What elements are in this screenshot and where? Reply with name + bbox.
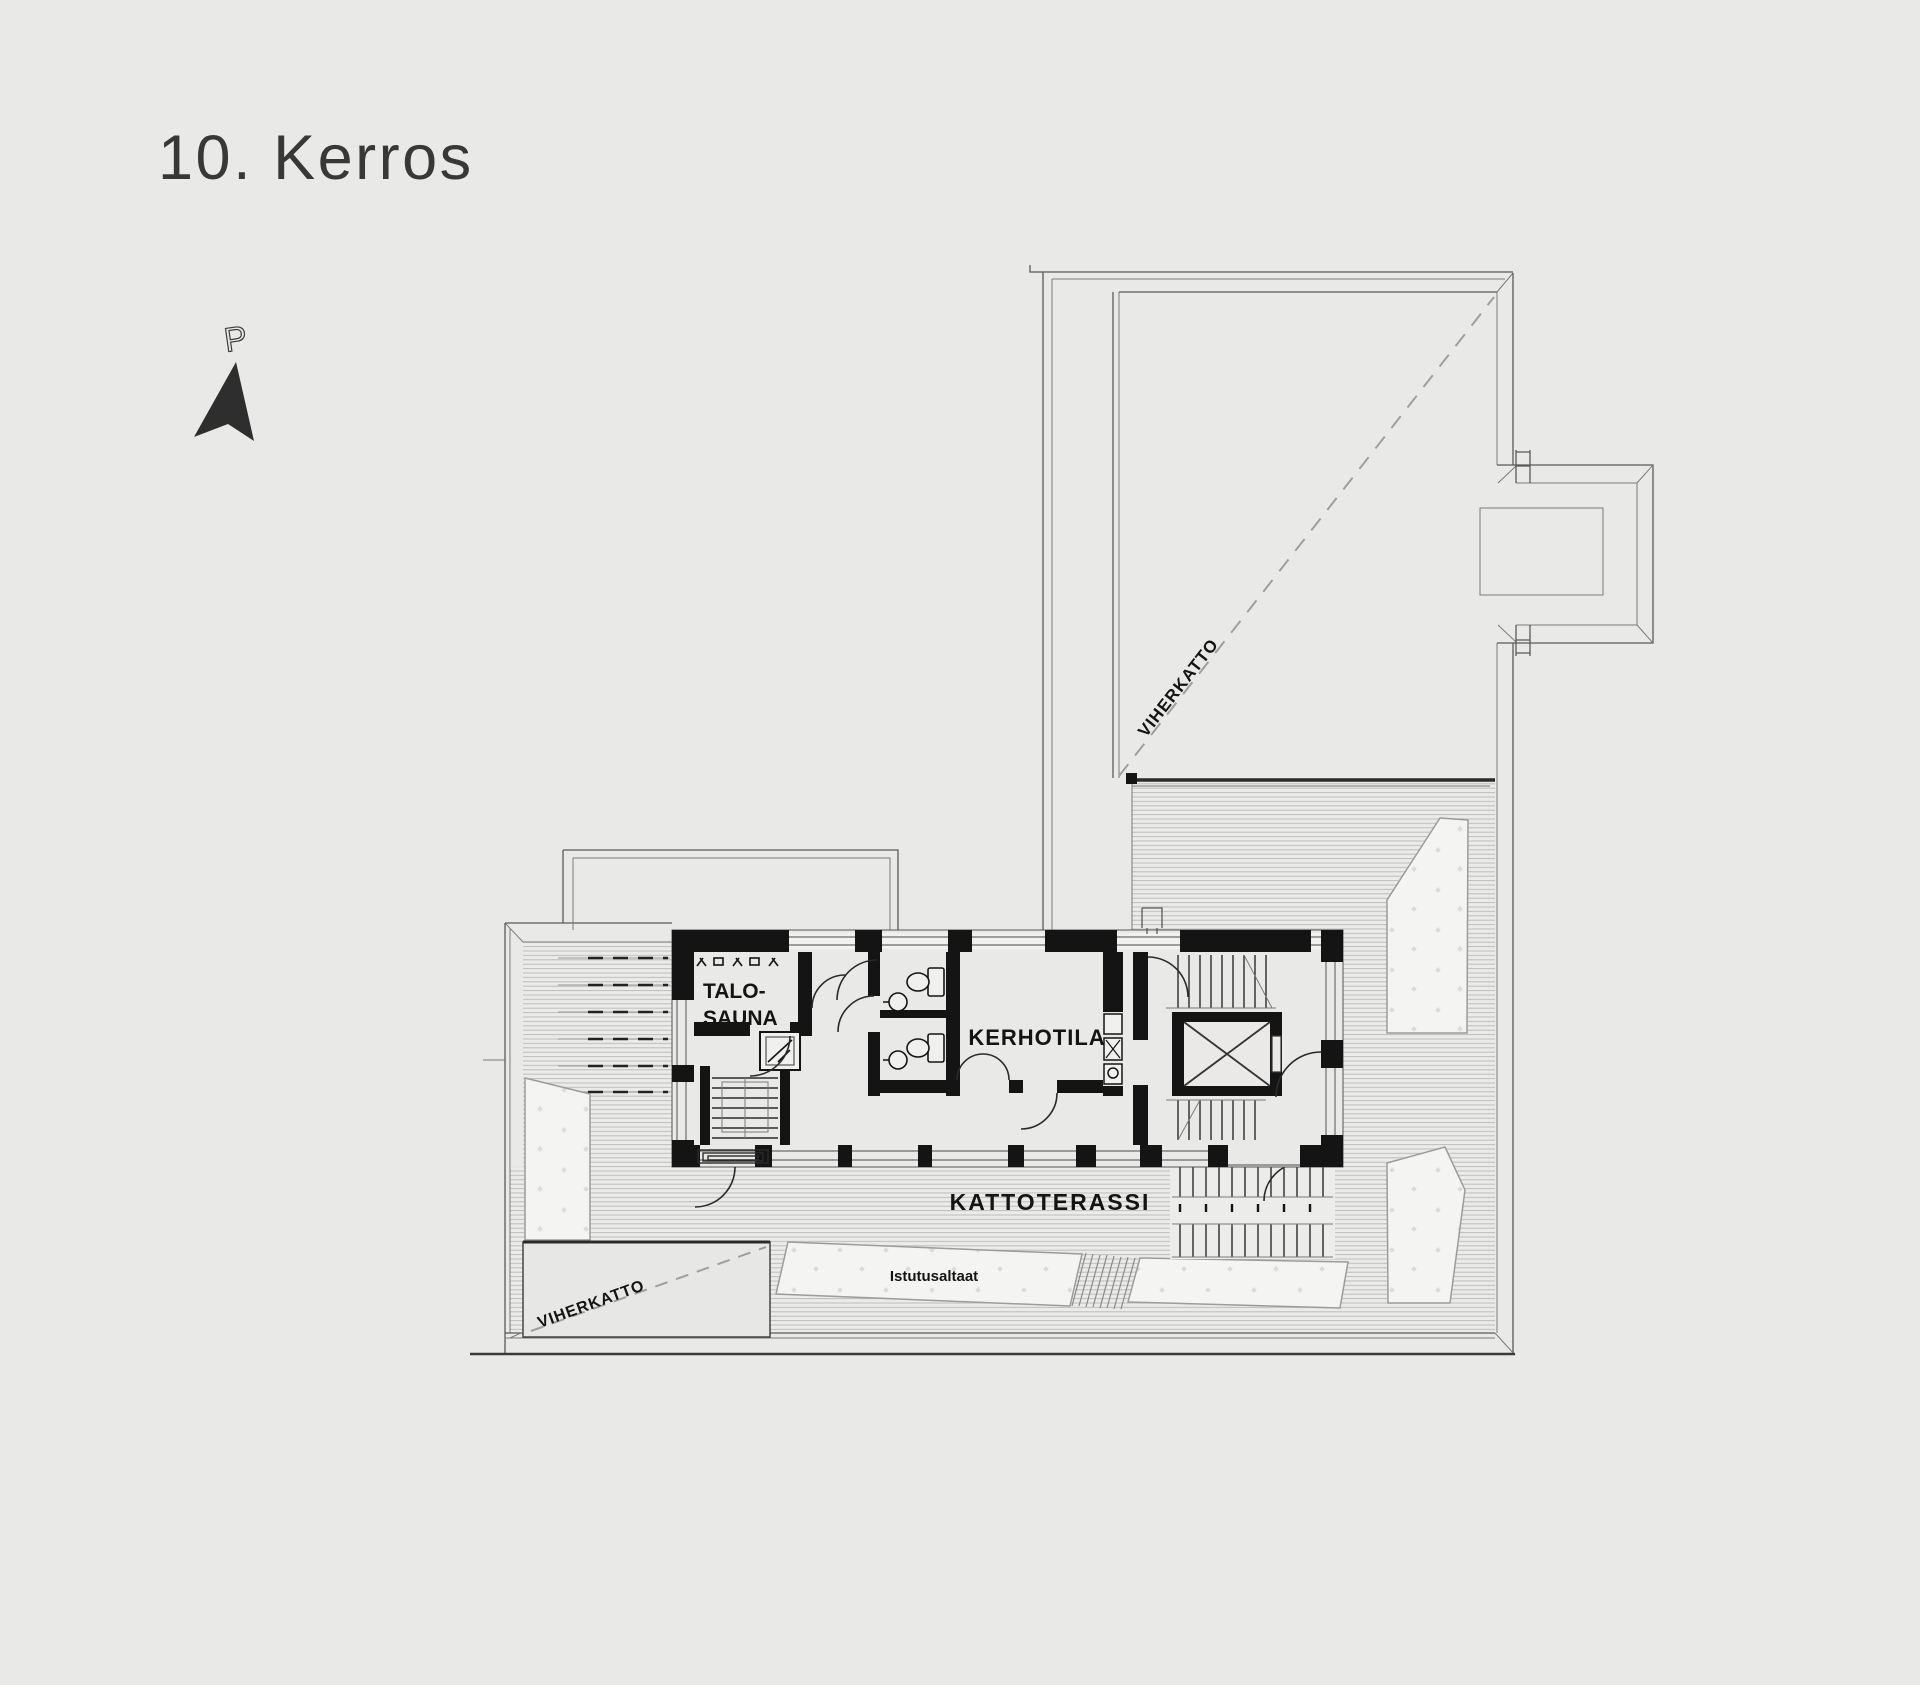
north-arrow: P	[194, 319, 254, 441]
roof-bumpout	[1480, 450, 1653, 656]
club-room-label: KERHOTILA	[968, 1025, 1105, 1050]
building: TALO- SAUNA KERHOTILA	[672, 908, 1343, 1207]
floor-plan-drawing: P VIHERKATTO	[0, 0, 1920, 1680]
north-label: P	[222, 319, 250, 360]
roof-terrace-label: KATTOTERASSI	[950, 1189, 1151, 1215]
sauna-label-line1: TALO-	[703, 980, 766, 1003]
lower-green-roof: VIHERKATTO	[510, 1242, 770, 1338]
internal-stair	[712, 1078, 778, 1138]
electrical-panel	[760, 1032, 800, 1070]
lower-roof-outline	[563, 850, 898, 930]
kitchenette	[1104, 1014, 1122, 1084]
page-title: 10. Kerros	[158, 122, 474, 194]
planters-label: Istutusaltaat	[890, 1268, 978, 1285]
elevator	[1172, 1012, 1282, 1096]
green-roof-upper-label: VIHERKATTO	[1134, 635, 1222, 740]
terrace-stairs	[1170, 1163, 1335, 1259]
sauna-label-line2: SAUNA	[703, 1007, 778, 1030]
